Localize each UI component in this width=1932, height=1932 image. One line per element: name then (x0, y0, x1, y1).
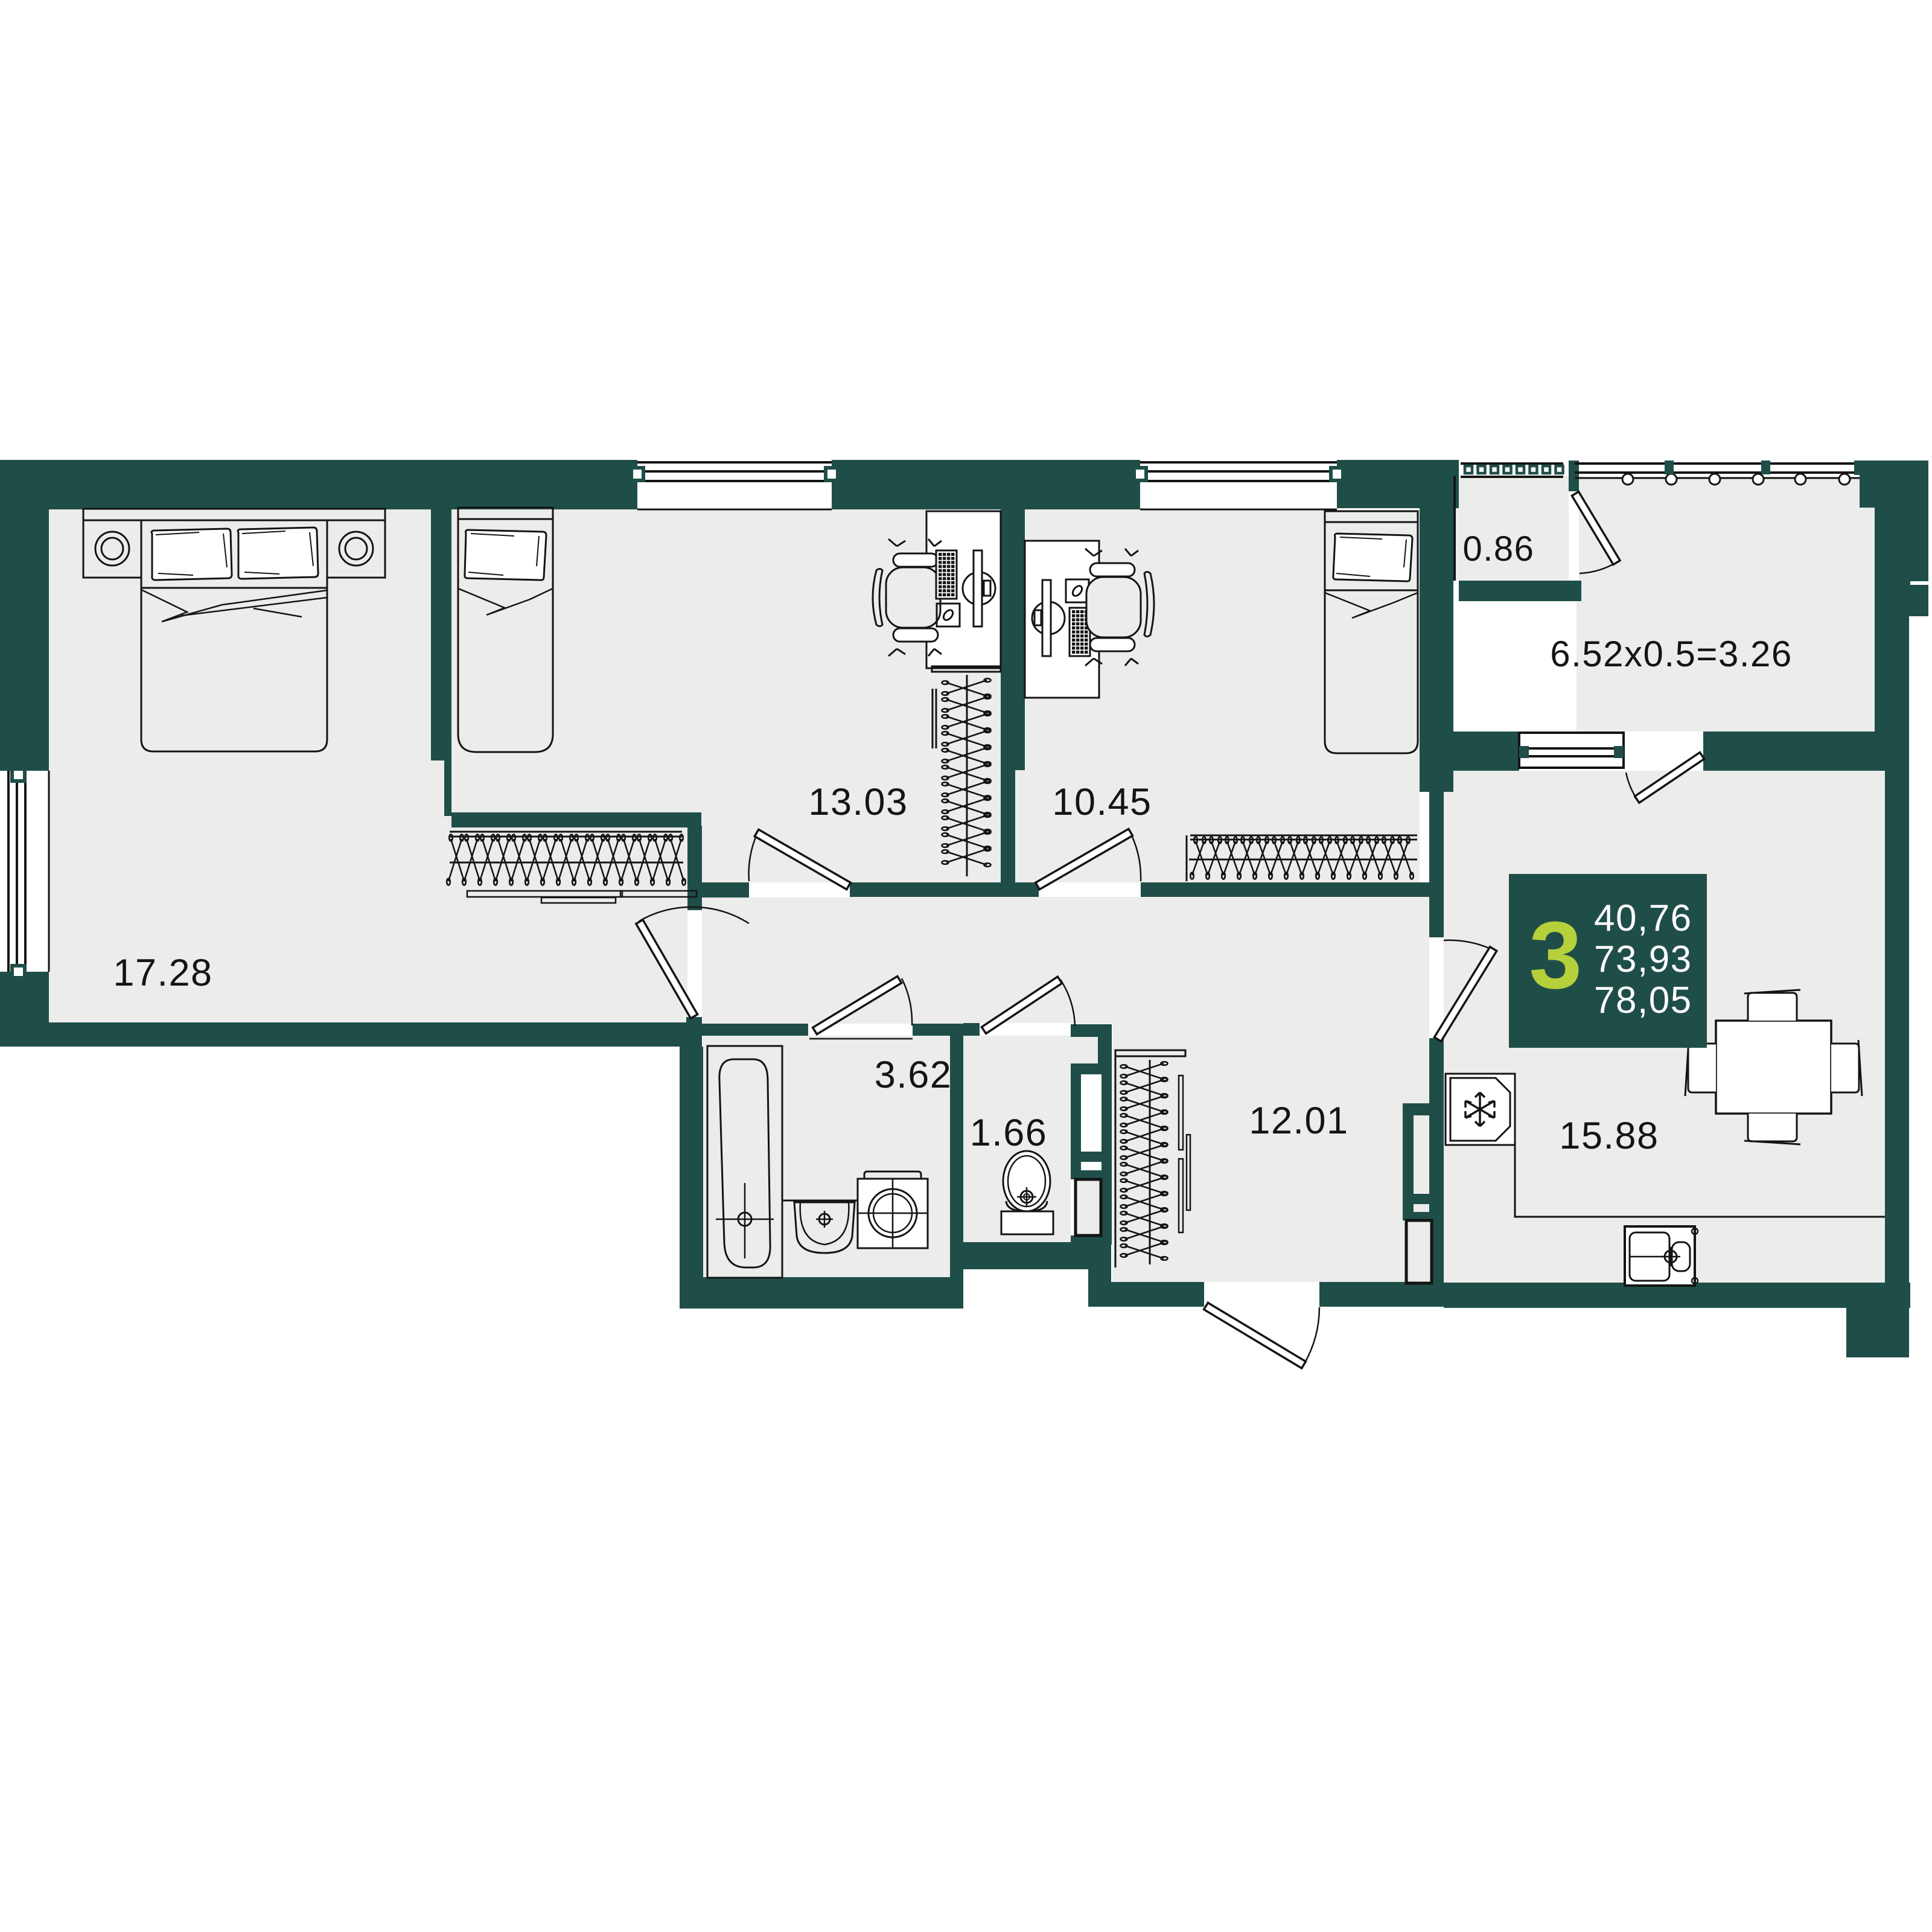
svg-text:1.66: 1.66 (970, 1112, 1048, 1154)
svg-text:78,05: 78,05 (1594, 980, 1692, 1021)
svg-text:15.88: 15.88 (1559, 1115, 1659, 1157)
svg-text:6.52x0.5=3.26: 6.52x0.5=3.26 (1550, 634, 1793, 674)
svg-text:73,93: 73,93 (1594, 939, 1692, 980)
svg-text:0.86: 0.86 (1463, 529, 1535, 569)
svg-text:3.62: 3.62 (875, 1054, 952, 1096)
svg-text:3: 3 (1529, 902, 1583, 1009)
svg-text:13.03: 13.03 (808, 781, 908, 823)
svg-text:17.28: 17.28 (113, 952, 212, 994)
svg-text:10.45: 10.45 (1052, 781, 1152, 823)
svg-text:40,76: 40,76 (1594, 897, 1692, 939)
svg-text:12.01: 12.01 (1249, 1100, 1348, 1142)
